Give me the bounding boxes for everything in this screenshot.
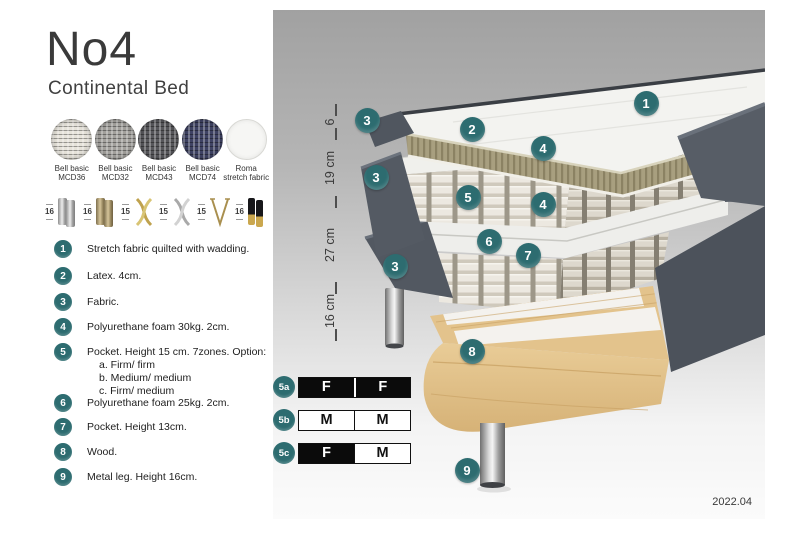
fabric-texture-icon: [226, 119, 267, 160]
callout-3-bottom: 3: [383, 254, 408, 279]
number-badge: 9: [54, 468, 72, 486]
feature-item-3: 3 Fabric.: [54, 293, 119, 311]
feature-item-5: 5 Pocket. Height 15 cm. 7zones. Option: …: [54, 343, 266, 398]
feature-item-1: 1 Stretch fabric quilted with wadding.: [54, 240, 249, 258]
fabric-side-right: [655, 206, 765, 372]
fabric-texture-icon: [51, 119, 92, 160]
callout-9: 9: [455, 458, 480, 483]
pocket-firmness-options: a. Firm/ firm b. Medium/ medium c. Firm/…: [99, 359, 266, 398]
callout-3-top: 3: [355, 108, 380, 133]
number-badge: 3: [54, 293, 72, 311]
firmness-badge: 5a: [273, 376, 295, 398]
firmness-bar: F M: [298, 443, 411, 464]
leg-option-brass: 16: [83, 186, 121, 238]
callout-8: 8: [460, 339, 485, 364]
feature-item-2: 2 Latex. 4cm.: [54, 267, 141, 285]
fabric-swatch-row: Bell basicMCD36 Bell basicMCD32 Bell bas…: [50, 119, 268, 182]
version-date: 2022.04: [712, 496, 752, 508]
leg-option-hairpin: 15: [197, 186, 235, 238]
fabric-swatch-mcd74: Bell basicMCD74: [181, 119, 225, 182]
callout-1: 1: [634, 91, 659, 116]
chrome-leg-pair-icon: [56, 196, 80, 228]
number-badge: 4: [54, 318, 72, 336]
number-badge: 2: [54, 267, 72, 285]
callout-6: 6: [477, 229, 502, 254]
fabric-texture-icon: [95, 119, 136, 160]
callout-5: 5: [456, 185, 481, 210]
number-badge: 5: [54, 343, 72, 361]
twisted-gold-leg-icon: [132, 196, 156, 228]
number-badge: 8: [54, 443, 72, 461]
callout-2: 2: [460, 117, 485, 142]
callout-3-middle: 3: [364, 165, 389, 190]
leg-option-cross-gold: 15: [121, 186, 159, 238]
left-metal-leg: [385, 288, 404, 346]
dim-topper: 6: [323, 119, 337, 126]
fabric-swatch-roma: Romastretch fabric: [224, 119, 268, 182]
fabric-swatch-mcd36: Bell basicMCD36: [50, 119, 94, 182]
page-title: No4: [46, 22, 137, 77]
fabric-texture-icon: [182, 119, 223, 160]
fabric-swatch-mcd32: Bell basicMCD32: [94, 119, 138, 182]
page-subtitle: Continental Bed: [48, 78, 189, 100]
feature-item-6: 6 Polyurethane foam 25kg. 2cm.: [54, 394, 229, 412]
firmness-option-5c: 5c F M: [273, 442, 411, 464]
feature-item-9: 9 Metal leg. Height 16cm.: [54, 468, 197, 486]
firmness-option-5b: 5b M M: [273, 409, 411, 431]
firmness-bar: M M: [298, 410, 411, 431]
number-badge: 7: [54, 418, 72, 436]
dim-upper-mattress: 19 cm: [323, 151, 337, 185]
fabric-swatch-mcd43: Bell basicMCD43: [137, 119, 181, 182]
brass-leg-pair-icon: [94, 196, 118, 228]
twisted-silver-leg-icon: [170, 196, 194, 228]
product-sheet: No4 Continental Bed Bell basicMCD36 Bell…: [0, 0, 800, 533]
callout-4-lower: 4: [531, 192, 556, 217]
dim-leg: 16 cm: [323, 294, 337, 328]
callout-7: 7: [516, 243, 541, 268]
leg-option-chrome: 16: [45, 186, 83, 238]
leg-option-black-gold: 16: [235, 186, 273, 238]
hairpin-leg-icon: [208, 196, 232, 228]
feature-item-8: 8 Wood.: [54, 443, 117, 461]
fabric-texture-icon: [138, 119, 179, 160]
leg-option-cross-silver: 15: [159, 186, 197, 238]
number-badge: 6: [54, 394, 72, 412]
front-metal-leg: [480, 423, 505, 485]
leg-options-row: 16 16 15 15 15: [45, 186, 273, 238]
dim-lower-box: 27 cm: [323, 228, 337, 262]
callout-4-upper: 4: [531, 136, 556, 161]
firmness-option-5a: 5a F F: [273, 376, 411, 398]
bottom-box: [365, 184, 765, 493]
feature-item-7: 7 Pocket. Height 13cm.: [54, 418, 187, 436]
firmness-bar: F F: [298, 377, 411, 398]
feature-item-4: 4 Polyurethane foam 30kg. 2cm.: [54, 318, 229, 336]
firmness-badge: 5b: [273, 409, 295, 431]
bed-cutaway-panel: 6 19 cm 27 cm 16 cm 1 2 3 3 3 4 5 4 6 7 …: [273, 10, 765, 519]
black-gold-leg-pair-icon: [246, 196, 270, 228]
firmness-badge: 5c: [273, 442, 295, 464]
number-badge: 1: [54, 240, 72, 258]
